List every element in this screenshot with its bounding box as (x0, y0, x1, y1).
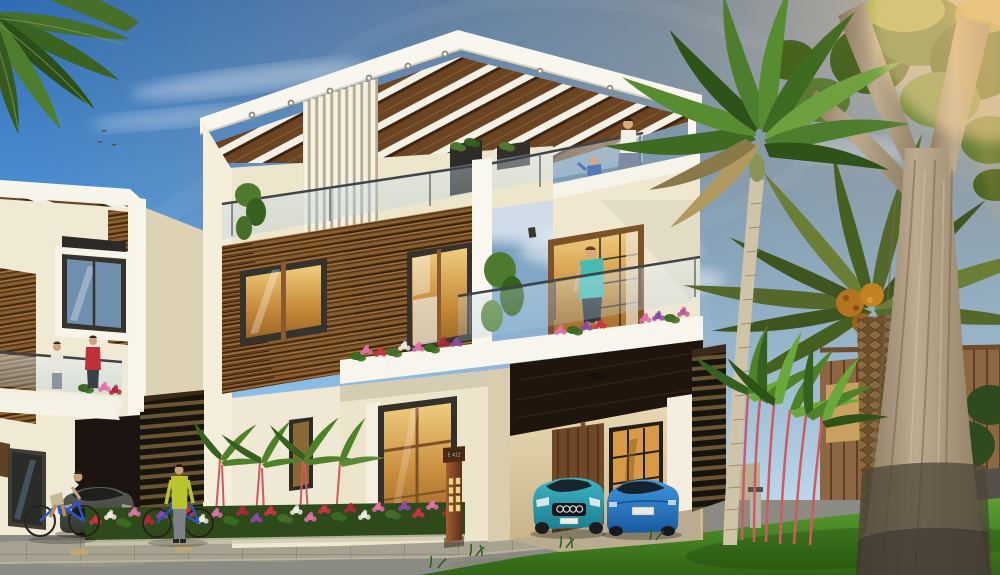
unit-signpost: E 412 (443, 446, 465, 548)
main-villa (144, 30, 726, 552)
architectural-render: E 412 (0, 0, 1000, 575)
left-villa-window (55, 236, 133, 342)
teal-car (530, 478, 606, 539)
window-horizontal (240, 258, 327, 346)
signpost-label: E 412 (447, 453, 460, 459)
